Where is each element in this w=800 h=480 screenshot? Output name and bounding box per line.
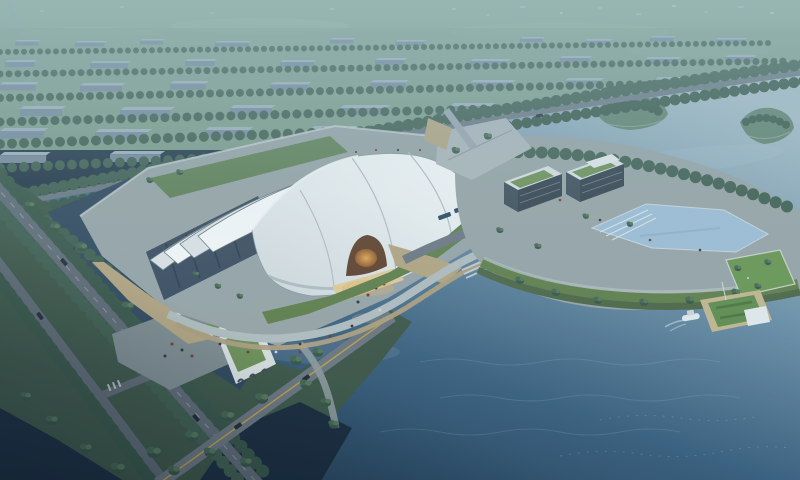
aerial-rendering	[0, 0, 800, 480]
cool-tint	[0, 0, 800, 480]
rendering-canvas	[0, 0, 800, 480]
